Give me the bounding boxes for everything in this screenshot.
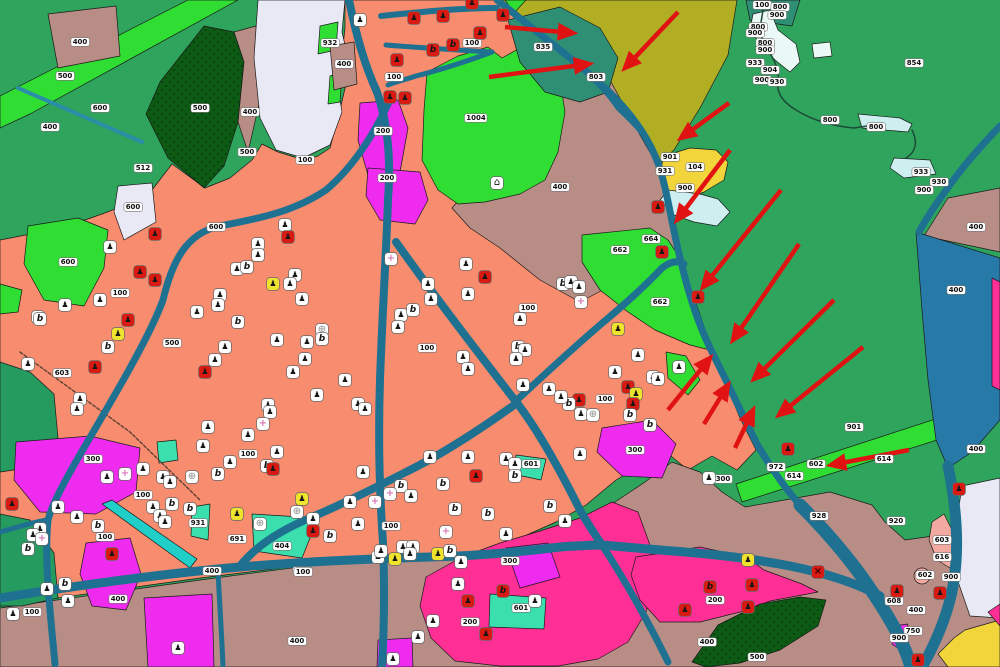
parcel-label: 400 — [109, 595, 127, 603]
parcel-label: 900 — [746, 29, 764, 37]
building-icon-red[interactable]: ♟ — [282, 231, 294, 243]
building-icon-red[interactable]: ♟ — [384, 91, 396, 103]
parcel-label: 600 — [124, 203, 142, 211]
building-icon[interactable]: ♟ — [271, 446, 283, 458]
map-canvas[interactable]: 4005006004005004005126001005009324001001… — [0, 0, 1000, 667]
utility-icon[interactable]: b — [59, 578, 71, 590]
parcel-label: 835 — [534, 43, 552, 51]
building-icon-red[interactable]: ♟ — [934, 587, 946, 599]
building-icon-yellow[interactable]: ♟ — [742, 554, 754, 566]
building-icon-red[interactable]: ♟ — [746, 579, 758, 591]
parcel-label: 900 — [768, 11, 786, 19]
parcel-label: 600 — [59, 258, 77, 266]
building-icon[interactable]: ♟ — [462, 288, 474, 300]
utility-icon[interactable]: b — [102, 341, 114, 353]
parcel-label: 512 — [134, 164, 152, 172]
building-icon[interactable]: ♟ — [457, 351, 469, 363]
parcel-label: 603 — [933, 536, 951, 544]
parcel-label: 662 — [611, 246, 629, 254]
parcel-label: 200 — [374, 127, 392, 135]
parcel-label: 200 — [706, 596, 724, 604]
parcel-label: 400 — [967, 223, 985, 231]
parcel-label: 500 — [238, 148, 256, 156]
parcel-label: 900 — [676, 184, 694, 192]
parcel-label: 932 — [321, 39, 339, 47]
building-icon-red[interactable]: ♟ — [480, 628, 492, 640]
building-icon-red[interactable]: ♟ — [891, 585, 903, 597]
building-icon-yellow[interactable]: ♟ — [432, 548, 444, 560]
parcel-label: 900 — [915, 186, 933, 194]
utility-icon[interactable]: b — [509, 470, 521, 482]
building-icon[interactable]: ♟ — [609, 366, 621, 378]
cross-icon[interactable]: + — [575, 296, 587, 308]
building-icon[interactable]: ♟ — [529, 595, 541, 607]
utility-icon-red[interactable]: b — [427, 44, 439, 56]
building-icon-red[interactable]: ♟ — [267, 463, 279, 475]
building-icon[interactable]: ♟ — [555, 391, 567, 403]
building-icon[interactable]: ♟ — [632, 349, 644, 361]
parcel-label: 972 — [767, 463, 785, 471]
parcel-label: 928 — [810, 512, 828, 520]
landmark-icon[interactable]: ⌂ — [491, 177, 503, 189]
utility-icon[interactable]: b — [212, 468, 224, 480]
utility-icon[interactable]: b — [316, 333, 328, 345]
parcel-label: 400 — [71, 38, 89, 46]
building-icon[interactable]: ♟ — [7, 608, 19, 620]
building-icon-red[interactable]: ♟ — [199, 366, 211, 378]
building-icon-yellow[interactable]: ♟ — [231, 508, 243, 520]
building-icon[interactable]: ♟ — [71, 511, 83, 523]
parcel-label: 601 — [522, 460, 540, 468]
parcel-label: 100 — [294, 568, 312, 576]
building-icon[interactable]: ♟ — [392, 321, 404, 333]
parcel-label: 664 — [642, 235, 660, 243]
building-icon[interactable]: ♟ — [462, 363, 474, 375]
parcel-label: 901 — [661, 153, 679, 161]
parcel-label: 100 — [596, 395, 614, 403]
building-icon[interactable]: ♟ — [299, 353, 311, 365]
building-icon[interactable]: ♟ — [137, 463, 149, 475]
building-icon[interactable]: ♟ — [242, 429, 254, 441]
building-icon[interactable]: ♟ — [559, 515, 571, 527]
building-icon[interactable]: ♟ — [455, 556, 467, 568]
building-icon[interactable]: ♟ — [296, 293, 308, 305]
parcel-label: 100 — [134, 491, 152, 499]
parcel-label: 602 — [807, 460, 825, 468]
building-icon[interactable]: ♟ — [311, 389, 323, 401]
parcel-label: 803 — [587, 73, 605, 81]
utility-icon[interactable]: b — [407, 304, 419, 316]
parcel-label: 300 — [714, 475, 732, 483]
building-icon[interactable]: ♟ — [514, 313, 526, 325]
building-icon[interactable]: ♟ — [224, 456, 236, 468]
building-icon[interactable]: ♟ — [164, 476, 176, 488]
building-icon[interactable]: ♟ — [104, 241, 116, 253]
building-icon[interactable]: ♟ — [301, 336, 313, 348]
parcel-label: 500 — [748, 653, 766, 661]
building-icon[interactable]: ♟ — [652, 373, 664, 385]
parcel-label: 100 — [463, 39, 481, 47]
parcel-label: 100 — [418, 344, 436, 352]
building-icon-red[interactable]: ♟ — [479, 271, 491, 283]
parcel-label: 400 — [203, 567, 221, 575]
building-icon[interactable]: ♟ — [673, 361, 685, 373]
utility-icon[interactable]: b — [324, 530, 336, 542]
cross-icon[interactable]: + — [36, 533, 48, 545]
circle-cross-icon[interactable]: ⊕ — [587, 409, 599, 421]
building-icon-red[interactable]: ♟ — [437, 10, 449, 22]
utility-icon[interactable]: b — [166, 498, 178, 510]
utility-icon[interactable]: b — [232, 316, 244, 328]
parcel-label: 400 — [41, 123, 59, 131]
building-icon[interactable]: ♟ — [510, 353, 522, 365]
parcel-label: 800 — [867, 123, 885, 131]
cross-icon[interactable]: + — [119, 468, 131, 480]
feature-overlay: 4005006004005004005126001005009324001001… — [0, 0, 1000, 667]
parcel-label: 500 — [191, 104, 209, 112]
utility-icon[interactable]: b — [444, 545, 456, 557]
building-icon[interactable]: ♟ — [509, 458, 521, 470]
building-icon[interactable]: ♟ — [427, 615, 439, 627]
parcel-label: 600 — [207, 223, 225, 231]
utility-icon-red[interactable]: b — [704, 581, 716, 593]
building-icon[interactable]: ♟ — [172, 642, 184, 654]
parcel-label: 400 — [288, 637, 306, 645]
building-icon-red[interactable]: ♟ — [652, 201, 664, 213]
parcel-label: 904 — [761, 66, 779, 74]
building-icon[interactable]: ♟ — [375, 545, 387, 557]
utility-icon[interactable]: b — [437, 478, 449, 490]
parcel-label: 300 — [626, 446, 644, 454]
parcel-label: 500 — [56, 72, 74, 80]
building-icon-red[interactable]: ♟ — [106, 548, 118, 560]
building-icon-red[interactable]: ♟ — [692, 291, 704, 303]
parcel-label: 400 — [698, 638, 716, 646]
parcel-label: 104 — [686, 163, 704, 171]
parcel-label: 901 — [845, 423, 863, 431]
parcel-label: 400 — [335, 60, 353, 68]
building-icon-red[interactable]: ♟ — [122, 314, 134, 326]
building-icon-red[interactable]: ♟ — [391, 54, 403, 66]
parcel-label: 930 — [930, 178, 948, 186]
building-icon[interactable]: ♟ — [452, 578, 464, 590]
cross-icon[interactable]: + — [440, 526, 452, 538]
building-icon[interactable]: ♟ — [395, 309, 407, 321]
building-icon[interactable]: ♟ — [412, 631, 424, 643]
building-icon[interactable]: ♟ — [252, 249, 264, 261]
parcel-label: 900 — [942, 573, 960, 581]
building-icon[interactable]: ♟ — [52, 501, 64, 513]
building-icon-yellow[interactable]: ♟ — [612, 323, 624, 335]
parcel-label: 691 — [228, 535, 246, 543]
parcel-label: 400 — [241, 108, 259, 116]
building-icon-red[interactable]: ♟ — [307, 525, 319, 537]
building-icon-red[interactable]: ♟ — [656, 246, 668, 258]
building-icon-red[interactable]: ♟ — [149, 274, 161, 286]
cross-icon[interactable]: + — [257, 418, 269, 430]
parcel-label: 400 — [967, 445, 985, 453]
building-icon[interactable]: ♟ — [404, 548, 416, 560]
building-icon[interactable]: ♟ — [159, 516, 171, 528]
building-icon[interactable]: ♟ — [339, 374, 351, 386]
building-icon[interactable]: ♟ — [62, 595, 74, 607]
building-icon[interactable]: ♟ — [352, 518, 364, 530]
parcel-label: 800 — [821, 116, 839, 124]
utility-icon[interactable]: b — [624, 409, 636, 421]
parcel-label: 100 — [519, 304, 537, 312]
building-icon-yellow[interactable]: ♟ — [389, 553, 401, 565]
building-icon[interactable]: ♟ — [191, 306, 203, 318]
building-icon[interactable]: ♟ — [517, 379, 529, 391]
building-icon[interactable]: ♟ — [405, 490, 417, 502]
parcel-label: 600 — [91, 104, 109, 112]
parcel-label: 614 — [785, 472, 803, 480]
building-icon-red[interactable]: ♟ — [462, 595, 474, 607]
building-icon-red[interactable]: ♟ — [466, 0, 478, 9]
parcel-label: 800 — [771, 3, 789, 11]
parcel-label: 100 — [239, 450, 257, 458]
utility-icon[interactable]: b — [241, 261, 253, 273]
parcel-label: 602 — [916, 571, 934, 579]
circle-cross-icon[interactable]: ⊕ — [254, 518, 266, 530]
building-icon[interactable]: ♟ — [500, 528, 512, 540]
utility-icon[interactable]: b — [449, 503, 461, 515]
parcel-label: 900 — [756, 46, 774, 54]
parcel-label: 300 — [84, 455, 102, 463]
building-icon[interactable]: ♟ — [284, 278, 296, 290]
circle-cross-icon[interactable]: ⊕ — [186, 471, 198, 483]
parcel-label: 300 — [501, 557, 519, 565]
parcel-label: 100 — [96, 533, 114, 541]
parcel-label: 614 — [875, 455, 893, 463]
utility-icon-red[interactable]: b — [447, 39, 459, 51]
parcel-label: 200 — [378, 174, 396, 182]
parcel-label: 662 — [651, 298, 669, 306]
parcel-label: 100 — [111, 289, 129, 297]
building-icon[interactable]: ♟ — [271, 334, 283, 346]
parcel-label: 608 — [885, 597, 903, 605]
parcel-label: 931 — [656, 167, 674, 175]
parcel-label: 1004 — [465, 114, 487, 122]
parcel-label: 400 — [947, 286, 965, 294]
parcel-label: 100 — [753, 1, 771, 9]
building-icon-red[interactable]: ♟ — [6, 498, 18, 510]
building-icon[interactable]: ♟ — [424, 451, 436, 463]
parcel-label: 200 — [461, 618, 479, 626]
building-icon[interactable]: ♟ — [359, 403, 371, 415]
utility-icon[interactable]: b — [92, 520, 104, 532]
building-icon-red[interactable]: ♟ — [470, 470, 482, 482]
building-icon[interactable]: ♟ — [202, 421, 214, 433]
utility-icon[interactable]: b — [482, 508, 494, 520]
building-icon-red[interactable]: ♟ — [742, 601, 754, 613]
building-icon-yellow[interactable]: ♟ — [267, 278, 279, 290]
building-icon[interactable]: ♟ — [71, 403, 83, 415]
parcel-label: 100 — [296, 156, 314, 164]
building-icon[interactable]: ♟ — [422, 278, 434, 290]
building-icon-red[interactable]: ♟ — [497, 9, 509, 21]
parcel-label: 100 — [385, 73, 403, 81]
building-icon[interactable]: ♟ — [307, 513, 319, 525]
building-icon-red[interactable]: ♟ — [953, 483, 965, 495]
parcel-label: 100 — [382, 522, 400, 530]
parcel-label: 603 — [53, 369, 71, 377]
building-icon-red[interactable]: ♟ — [408, 12, 420, 24]
building-icon[interactable]: ♟ — [264, 406, 276, 418]
utility-icon-red[interactable]: b — [497, 585, 509, 597]
parcel-label: 404 — [273, 542, 291, 550]
parcel-label: 601 — [512, 604, 530, 612]
building-icon[interactable]: ♟ — [357, 466, 369, 478]
building-icon[interactable]: ♟ — [425, 293, 437, 305]
parcel-label: 900 — [890, 634, 908, 642]
building-icon[interactable]: ♟ — [209, 354, 221, 366]
utility-icon[interactable]: b — [184, 503, 196, 515]
building-icon[interactable]: ♟ — [344, 496, 356, 508]
building-icon[interactable]: ♟ — [94, 294, 106, 306]
building-icon-red[interactable]: ♟ — [149, 228, 161, 240]
utility-icon[interactable]: b — [644, 419, 656, 431]
building-icon[interactable]: ♟ — [197, 440, 209, 452]
building-icon-red[interactable]: ♟ — [89, 361, 101, 373]
building-icon-red[interactable]: ♟ — [782, 443, 794, 455]
cross-icon[interactable]: + — [384, 488, 396, 500]
utility-icon[interactable]: b — [22, 543, 34, 555]
building-icon[interactable]: ♟ — [703, 472, 715, 484]
parcel-label: 931 — [189, 519, 207, 527]
parcel-label: 616 — [933, 553, 951, 561]
circle-cross-icon[interactable]: ⊕ — [291, 506, 303, 518]
parcel-label: 400 — [551, 183, 569, 191]
building-icon[interactable]: ♟ — [279, 219, 291, 231]
parcel-label: 854 — [905, 59, 923, 67]
building-icon-red[interactable]: ♟ — [679, 604, 691, 616]
cross-icon[interactable]: + — [385, 253, 397, 265]
building-icon[interactable]: ♟ — [573, 281, 585, 293]
utility-icon[interactable]: b — [34, 313, 46, 325]
building-icon[interactable]: ♟ — [219, 341, 231, 353]
building-icon-red[interactable]: ♟ — [912, 654, 924, 666]
parcel-label: 930 — [768, 78, 786, 86]
parcel-label: 933 — [912, 168, 930, 176]
building-icon[interactable]: ♟ — [41, 583, 53, 595]
parcel-label: 500 — [163, 339, 181, 347]
building-icon[interactable]: ♟ — [462, 451, 474, 463]
cross-icon[interactable]: + — [369, 496, 381, 508]
building-icon[interactable]: ♟ — [22, 358, 34, 370]
building-icon[interactable]: ♟ — [354, 14, 366, 26]
parcel-label: 100 — [23, 608, 41, 616]
building-icon-yellow[interactable]: ♟ — [296, 493, 308, 505]
building-icon[interactable]: ♟ — [212, 299, 224, 311]
building-icon-red[interactable]: ♟ — [134, 266, 146, 278]
building-icon[interactable]: ♟ — [387, 653, 399, 665]
building-icon[interactable]: ♟ — [287, 366, 299, 378]
x-marker-icon[interactable]: × — [812, 566, 824, 578]
building-icon-red[interactable]: ♟ — [474, 27, 486, 39]
utility-icon[interactable]: b — [544, 500, 556, 512]
parcel-label: 920 — [887, 517, 905, 525]
building-icon[interactable]: ♟ — [101, 471, 113, 483]
parcel-label: 400 — [907, 606, 925, 614]
building-icon[interactable]: ♟ — [575, 408, 587, 420]
building-icon-red[interactable]: ♟ — [399, 92, 411, 104]
building-icon[interactable]: ♟ — [574, 448, 586, 460]
building-icon-yellow[interactable]: ♟ — [112, 328, 124, 340]
building-icon[interactable]: ♟ — [543, 383, 555, 395]
building-icon[interactable]: ♟ — [460, 258, 472, 270]
building-icon[interactable]: ♟ — [59, 299, 71, 311]
